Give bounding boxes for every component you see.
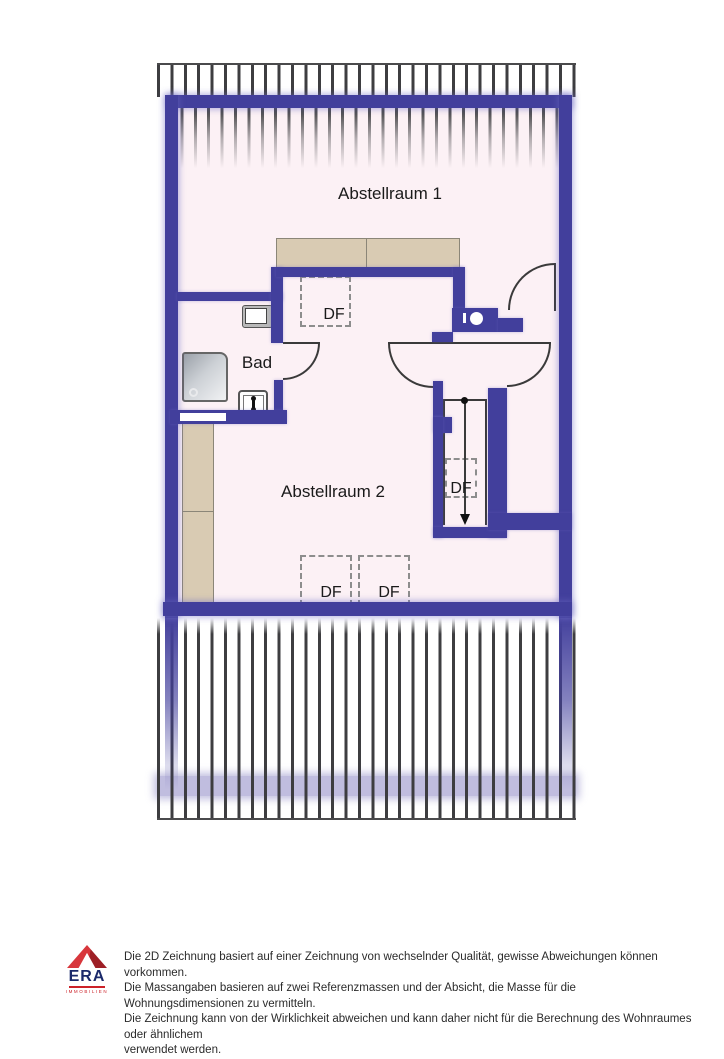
roof-hatching-bottom-fade [157, 618, 576, 648]
disclaimer: Die 2D Zeichnung basiert auf einer Zeich… [124, 950, 699, 1059]
toilet-icon-top [251, 396, 256, 401]
roof-hatching-bottom [157, 618, 576, 820]
disclaimer-line-4: verwendet werden. [124, 1043, 699, 1059]
wall-alcove-right [453, 267, 465, 310]
wall-bathroom-right-lower [274, 380, 283, 413]
skylight-label-room2-right: DF [378, 584, 399, 602]
wall-bottom-room2 [163, 602, 572, 616]
wall-hall-block-step [498, 318, 523, 332]
wall-hall-left-lower [433, 381, 443, 417]
cabinet-top-left [276, 238, 367, 268]
room-label-abstellraum-2: Abstellraum 2 [281, 482, 385, 502]
era-subbrand-text: IMMOBILIEN [63, 989, 111, 994]
column-icon [470, 312, 483, 325]
wall-right [559, 95, 572, 618]
disclaimer-line-2: Die Massangaben basieren auf zwei Refere… [124, 981, 699, 1012]
disclaimer-line-3: Die Zeichnung kann von der Wirklichkeit … [124, 1012, 699, 1043]
room-label-abstellraum-1: Abstellraum 1 [338, 184, 442, 204]
cabinet-top-right [366, 238, 460, 268]
stairs-direction-start-dot [461, 397, 468, 404]
left-wall-fade [165, 615, 178, 805]
sink-basin [245, 308, 267, 324]
roof-hatching-top [157, 63, 576, 97]
floor-plan: DF DF DF DF Abstellraum 1 Bad Abstellrau… [155, 62, 577, 820]
room-label-bad: Bad [242, 353, 272, 373]
wall-niche [180, 413, 226, 421]
era-roof-icon [67, 945, 107, 968]
skylight-label-center: DF [323, 306, 344, 324]
wall-bathroom-top [177, 292, 283, 301]
wall-hall-bottom [488, 513, 572, 530]
wall-left [165, 95, 178, 618]
stairs-right-string [485, 401, 487, 525]
wall-hall-step-left [432, 332, 453, 342]
wall-alcove-top [276, 267, 463, 277]
cabinet-side-lower [182, 511, 214, 605]
right-wall-fade [559, 615, 572, 805]
cabinet-side-upper [182, 423, 214, 513]
stairs-direction-line [464, 403, 466, 517]
wall-stairs-left [433, 417, 443, 538]
switch-icon [463, 313, 466, 323]
era-brand-text: ERA [69, 968, 106, 988]
disclaimer-line-1: Die 2D Zeichnung basiert auf einer Zeich… [124, 950, 699, 981]
shower-drain-icon [189, 388, 198, 397]
wall-top [168, 95, 572, 108]
shower-tray [182, 352, 228, 402]
sink [242, 305, 273, 328]
skylight-label-room2-left: DF [320, 584, 341, 602]
roof-hatching-fade [167, 108, 572, 172]
stairs-direction-arrowhead [460, 514, 470, 525]
skylight-label-stairs: DF [450, 480, 471, 498]
wall-bathroom-right-upper [271, 267, 283, 343]
era-logo: ERA IMMOBILIEN [63, 945, 111, 1011]
